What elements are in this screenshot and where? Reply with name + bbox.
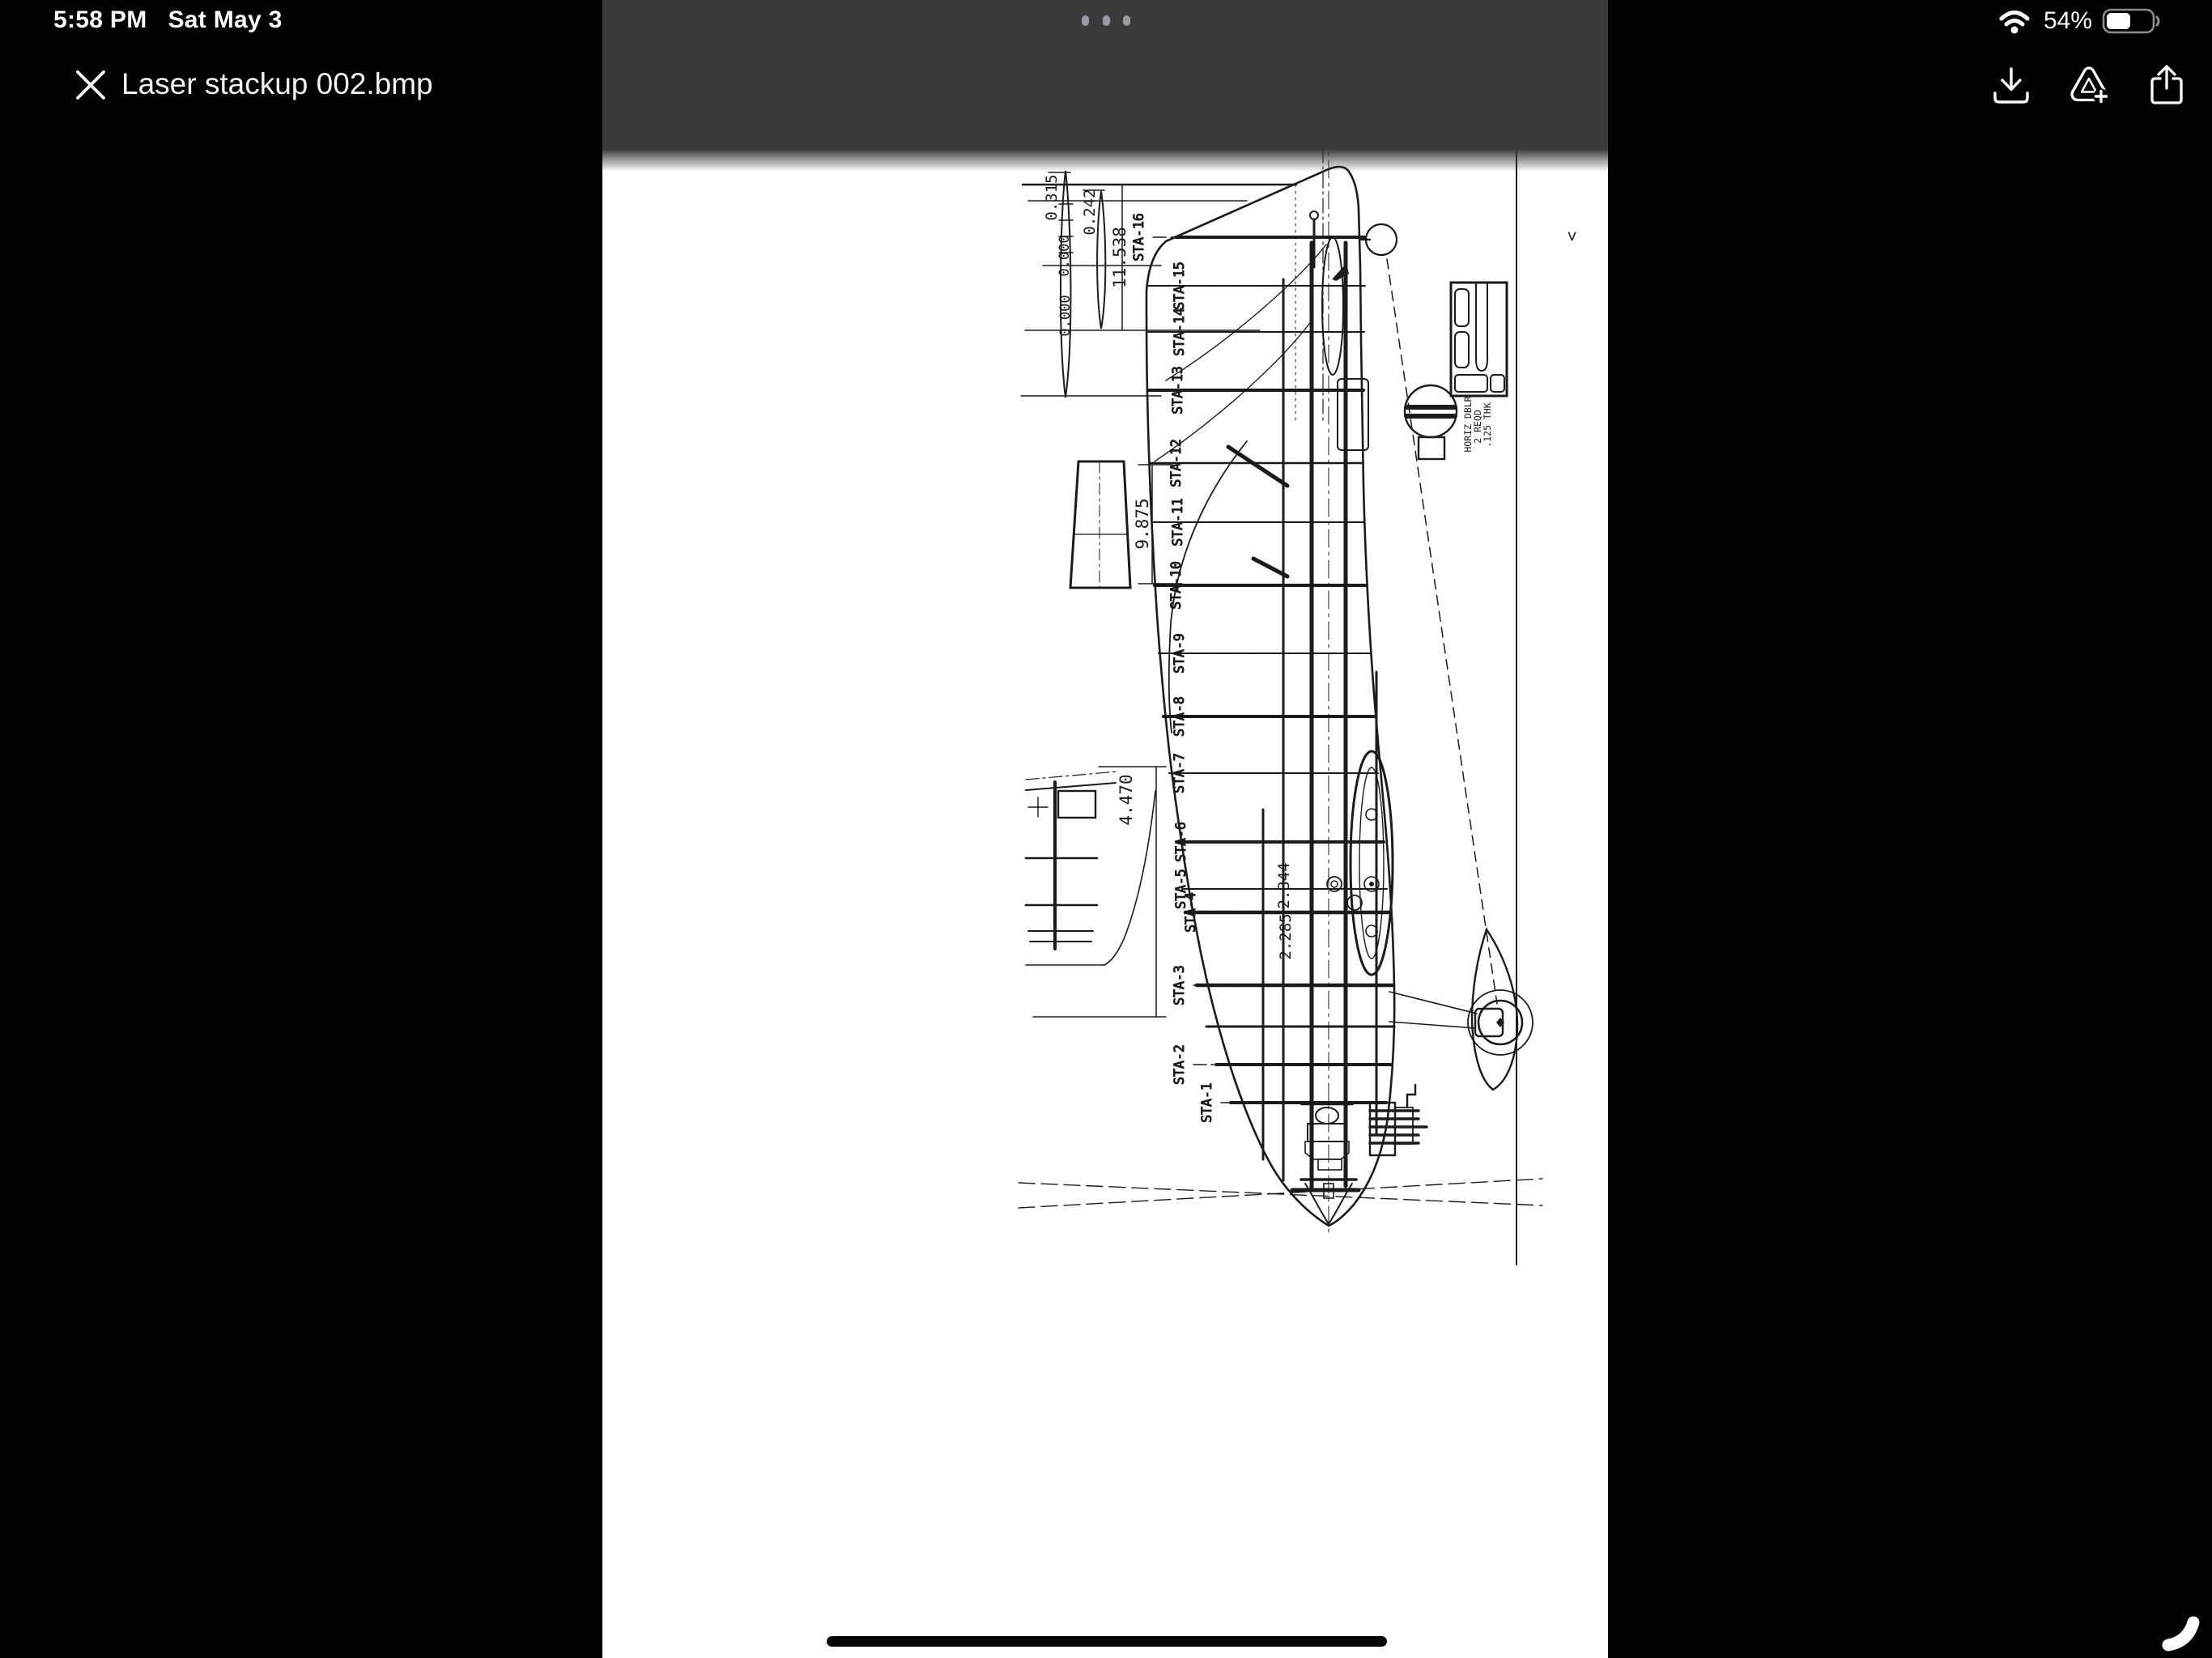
- dim-9875: 9.875: [1133, 498, 1152, 549]
- document-viewer[interactable]: <: [602, 0, 1608, 1658]
- sheet-border: <: [1516, 45, 1581, 1265]
- tail-details: [1310, 211, 1397, 450]
- wifi-icon: [1998, 8, 2034, 34]
- station-label: STA-3: [1172, 965, 1187, 1005]
- dim-0242: 0.242: [1081, 189, 1099, 235]
- template-panel: HORIZ DBLR 2 REQD .125 THK: [1451, 283, 1507, 453]
- download-button[interactable]: [1987, 61, 2035, 109]
- station-label: STA-14: [1172, 308, 1187, 356]
- station-label: STA-5: [1173, 869, 1189, 909]
- engine-detail: [1301, 1085, 1427, 1224]
- wing-reference-lines: [1019, 1179, 1542, 1208]
- add-to-drive-button[interactable]: [2065, 61, 2113, 109]
- document-title: Laser stackup 002.bmp: [121, 67, 433, 101]
- ellipsis-dot: [1103, 15, 1110, 26]
- station-label: STA-12: [1168, 439, 1184, 487]
- share-icon: [2152, 66, 2181, 103]
- stab-tip-template: [1070, 461, 1130, 588]
- home-indicator[interactable]: [827, 1636, 1387, 1647]
- ellipsis-dot: [1082, 15, 1089, 26]
- date-label: Sat May 3: [168, 6, 282, 34]
- share-button[interactable]: [2142, 61, 2191, 109]
- dim-4470: 4.470: [1117, 774, 1136, 825]
- close-button[interactable]: [71, 66, 110, 104]
- corner-swipe-indicator: [2155, 1601, 2212, 1658]
- more-options-button[interactable]: [1082, 13, 1130, 28]
- station-label: STA-6: [1173, 822, 1189, 862]
- station-label: STA-1: [1199, 1082, 1214, 1123]
- status-bar-left: 5:58 PM Sat May 3: [53, 6, 283, 34]
- template-note-line3: .125 THK: [1482, 402, 1493, 447]
- document-header-fade: [602, 149, 1608, 172]
- dim-2344: 2.344: [1275, 862, 1293, 908]
- station-label: STA-16: [1131, 213, 1146, 261]
- sheet-mark: <: [1562, 232, 1581, 241]
- stab-section-views: [1021, 171, 1296, 397]
- dim-2285: 2.285: [1277, 913, 1295, 959]
- station-label: STA-10: [1168, 561, 1184, 610]
- ipad-screen: <: [0, 0, 2212, 1658]
- station-label: STA-8: [1172, 696, 1187, 737]
- station-label: STA-9: [1172, 633, 1187, 674]
- dim-11538: 11.538: [1110, 227, 1129, 288]
- dim-0000-a: 0.000: [1057, 235, 1073, 276]
- ellipsis-dot: [1123, 15, 1130, 26]
- close-icon: [78, 72, 104, 98]
- station-label: STA-13: [1170, 366, 1185, 414]
- gear-and-cable: [1387, 259, 1533, 1090]
- add-to-drive-icon: [2072, 68, 2109, 104]
- dim-0000-b: 0.000: [1057, 295, 1074, 336]
- status-bar-right: 54%: [1998, 6, 2162, 36]
- download-icon: [1995, 69, 2027, 102]
- battery-percent-label: 54%: [2044, 7, 2092, 35]
- station-label: STA-15: [1172, 261, 1187, 310]
- station-label: STA-11: [1170, 498, 1185, 546]
- station-label: STA-2: [1172, 1044, 1187, 1085]
- clock-label: 5:58 PM: [53, 6, 147, 34]
- blueprint-image: <: [602, 0, 1608, 1658]
- battery-icon: [2102, 6, 2162, 36]
- dim-0315: 0.315: [1043, 174, 1061, 220]
- wing-root-detail: 4.470: [1026, 767, 1166, 1017]
- stab-dimensions: 11.538 0.315 0.242 0.000 0.000: [1043, 174, 1129, 336]
- station-label: STA-7: [1172, 753, 1187, 793]
